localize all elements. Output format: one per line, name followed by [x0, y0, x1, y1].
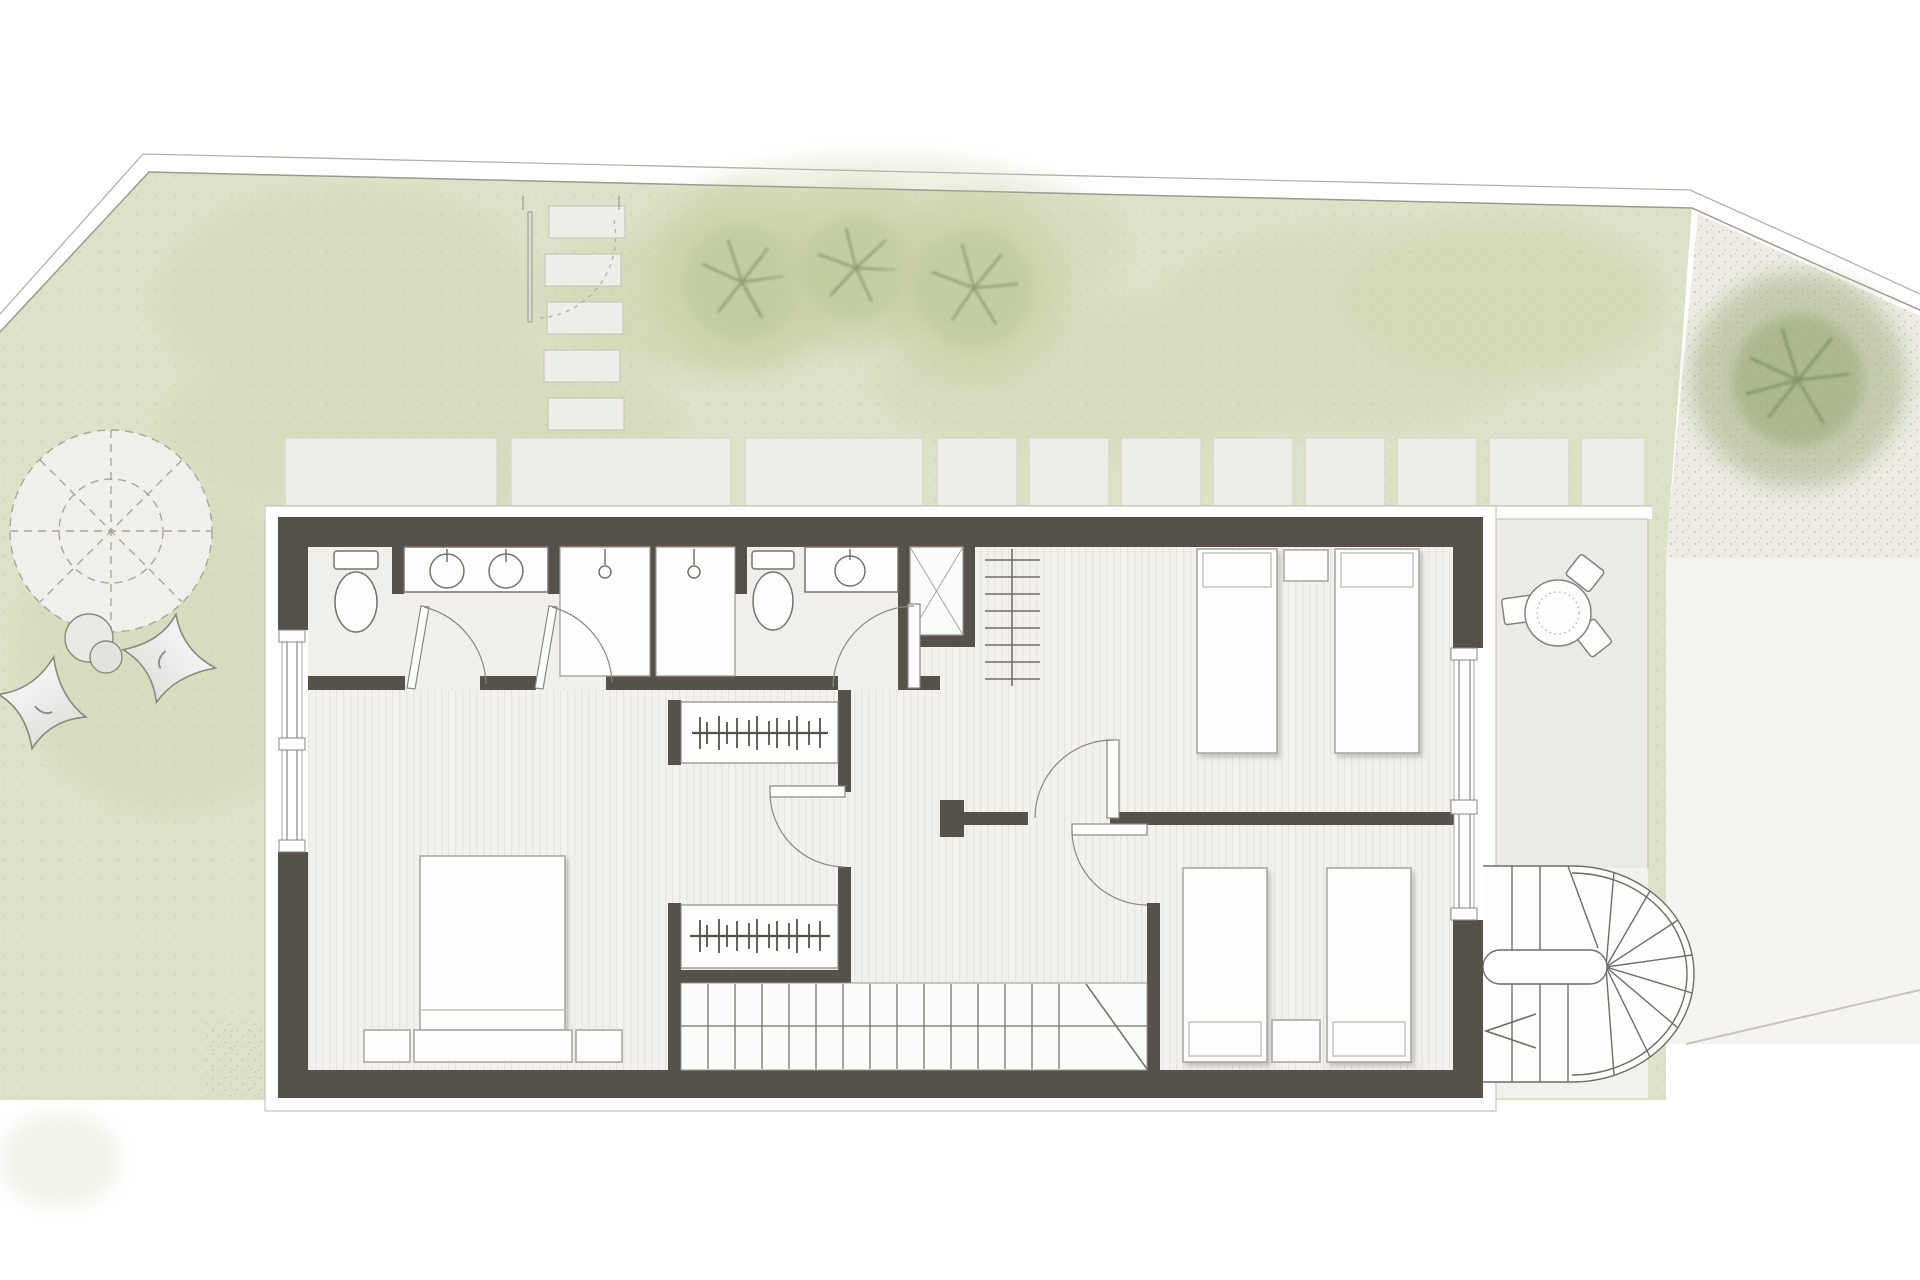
tree-symbol-dashed-circle [10, 430, 212, 632]
pillow [1341, 553, 1413, 587]
patio-pavers [285, 438, 1645, 506]
large-tree-east [1690, 272, 1906, 488]
building [265, 506, 1496, 1111]
tree-soft [880, 194, 1068, 382]
floor-plan-page [0, 0, 1920, 1280]
floor-plan-canvas [0, 0, 1920, 1280]
pillow [1203, 553, 1271, 587]
headboard [414, 1030, 572, 1062]
pillow [1333, 1022, 1405, 1056]
main-stair [681, 983, 1147, 1070]
toilet [752, 551, 794, 630]
round-table [1525, 580, 1591, 646]
basin [835, 556, 865, 586]
nightstand [576, 1030, 622, 1062]
shower-stalls [560, 547, 735, 676]
door-leaf [770, 786, 845, 797]
nightstand [1284, 550, 1328, 581]
nightstand [1272, 1020, 1320, 1062]
pillow [1189, 1022, 1261, 1056]
door-leaf [1107, 740, 1119, 818]
door-leaf [1072, 824, 1147, 835]
vanity-counter [404, 547, 548, 592]
garden-smudge-southwest [0, 1112, 120, 1208]
driveway [1666, 558, 1920, 1044]
window-west [279, 630, 305, 852]
nightstand [364, 1030, 410, 1062]
toilet [334, 551, 378, 632]
door-leaf [908, 604, 920, 688]
double-bed [420, 856, 565, 1030]
window-east [1451, 648, 1477, 920]
spiral-newel [1483, 950, 1607, 984]
